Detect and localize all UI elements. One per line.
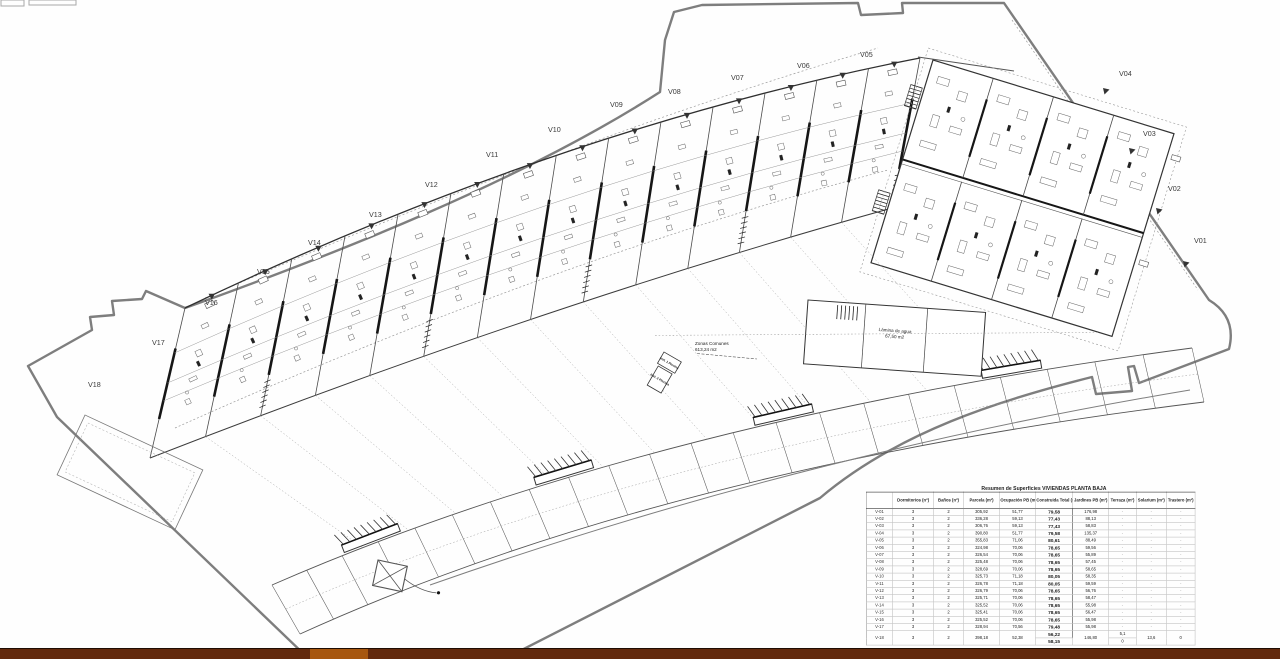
floor-plan-page: Lámina de agua67,50 m2Zonas Comunes613,2… — [0, 0, 1280, 659]
column-header: Terraza (m²) — [1109, 492, 1137, 508]
villa-label-V07: V07 — [731, 73, 744, 82]
table-row: V-1232326,7970,0678,6556,76--- — [866, 588, 1195, 595]
table-row: V-0532355,8371,0680,6188,49--- — [866, 537, 1195, 544]
table-row: V-1332325,7170,0678,6558,47--- — [866, 595, 1195, 602]
villa-label-V16: V16 — [205, 298, 218, 307]
table-row: V-1132326,7871,1880,0559,59--- — [866, 580, 1195, 587]
villa-label-V05: V05 — [860, 50, 873, 59]
villa-label-V09: V09 — [610, 100, 623, 109]
villa-label-V03: V03 — [1143, 129, 1156, 138]
villa-label-V13: V13 — [369, 210, 382, 219]
table-row: V-1632325,5270,0678,6555,98--- — [866, 616, 1195, 623]
table-row: V-1032325,7371,1880,0558,35--- — [866, 573, 1195, 580]
table-title: Resumen de Superficies VIVIENDAS PLANTA … — [893, 484, 1195, 492]
column-header: Baños (nº) — [934, 492, 964, 508]
bottom-bar — [0, 648, 1280, 659]
svg-text:613,24 m2: 613,24 m2 — [695, 347, 717, 352]
svg-text:Zonas Comunes: Zonas Comunes — [695, 341, 729, 346]
villa-label-V04: V04 — [1119, 69, 1132, 78]
table-row: V-0332306,7659,1377,4358,83--- — [866, 523, 1195, 530]
column-header: Solarium (m²) — [1136, 492, 1166, 508]
villa-label-V10: V10 — [548, 125, 561, 134]
table-row: V-0632324,9870,0678,6559,56--- — [866, 544, 1195, 551]
table-row: V-1432325,5270,0678,6555,98--- — [866, 602, 1195, 609]
table-row: V-0732326,5470,0678,6555,89--- — [866, 552, 1195, 559]
bottom-bar-accent — [310, 649, 368, 659]
table-row: V-0432390,8051,7779,58135,37--- — [866, 530, 1195, 537]
villa-label-V17: V17 — [152, 338, 165, 347]
column-header: Ocupación PB (m²) — [1000, 492, 1036, 508]
table-row: V-0932328,6970,0678,6558,65--- — [866, 566, 1195, 573]
table-row: V-0232336,2859,1377,4388,13--- — [866, 516, 1195, 523]
column-header: Parcela (m²) — [964, 492, 1000, 508]
table-row: V-1732328,9470,5679,4855,98--- — [866, 624, 1195, 631]
villa-label-V18: V18 — [88, 380, 101, 389]
villa-label-V11: V11 — [486, 150, 498, 159]
common-areas-label: Zonas Comunes613,24 m2 — [695, 341, 757, 359]
table-row: V-0832325,4870,0678,6557,45--- — [866, 559, 1195, 566]
villa-label-V02: V02 — [1168, 184, 1181, 193]
villa-label-V08: V08 — [668, 87, 681, 96]
column-header: Construida Total (m²) — [1036, 492, 1073, 508]
column-header: Jardines PB (m²) — [1073, 492, 1109, 508]
table-row: V-1532325,4170,0678,6556,47--- — [866, 609, 1195, 616]
summary-table: Resumen de Superficies VIVIENDAS PLANTA … — [866, 484, 1195, 659]
table-row: V-0132305,9251,7779,58176,98--- — [866, 508, 1195, 515]
area-summary-table: Resumen de Superficies VIVIENDAS PLANTA … — [866, 484, 1214, 659]
villa-label-V12: V12 — [425, 180, 438, 189]
column-header: Trastero (m²) — [1166, 492, 1195, 508]
villa-label-V15: V15 — [257, 267, 270, 276]
villa-label-V14: V14 — [308, 238, 321, 247]
column-header: Dormitorios (nº) — [893, 492, 934, 508]
villa-label-V01: V01 — [1194, 236, 1207, 245]
table-row-v18: V-1832398,1852,3856,22146,805,113,60 — [866, 631, 1195, 638]
pool-installations: Inst. 1 PiscinaInst. 2 Piscina — [645, 352, 682, 395]
villa-label-V06: V06 — [797, 61, 810, 70]
